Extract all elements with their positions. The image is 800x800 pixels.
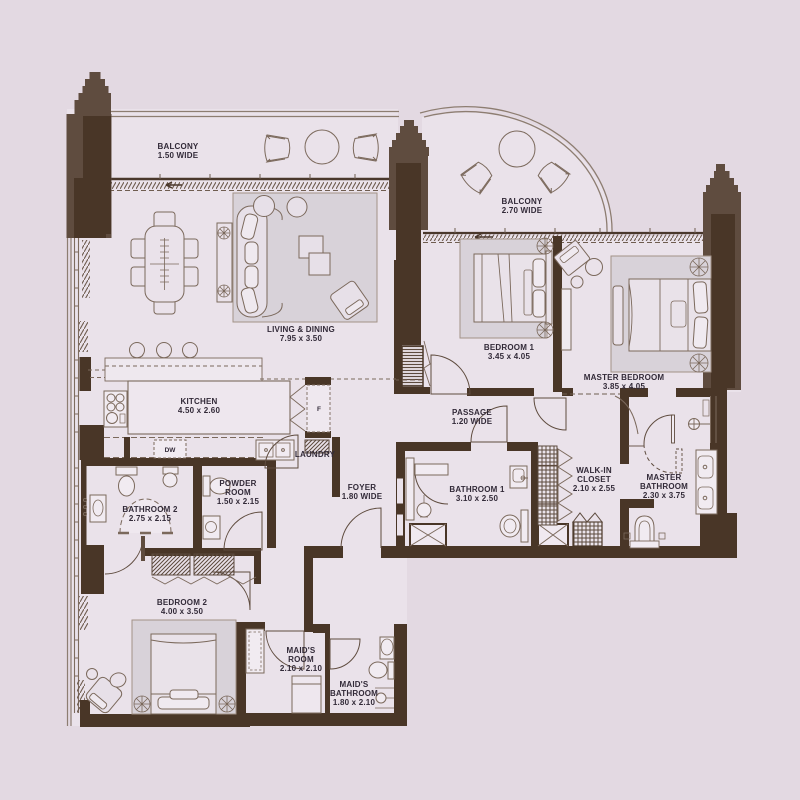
svg-text:BALCONY: BALCONY: [158, 142, 199, 151]
svg-text:2.10 x 2.55: 2.10 x 2.55: [573, 484, 616, 493]
svg-text:4.50 x 2.60: 4.50 x 2.60: [178, 406, 221, 415]
svg-text:1.50 x 2.15: 1.50 x 2.15: [217, 497, 260, 506]
svg-text:CLOSET: CLOSET: [577, 475, 611, 484]
svg-text:BEDROOM 2: BEDROOM 2: [157, 598, 208, 607]
svg-text:2.70 WIDE: 2.70 WIDE: [502, 206, 543, 215]
svg-text:4.00 x 3.50: 4.00 x 3.50: [161, 607, 204, 616]
svg-text:MAID'S: MAID'S: [287, 646, 316, 655]
svg-text:3.45 x 4.05: 3.45 x 4.05: [488, 352, 531, 361]
svg-text:BATHROOM: BATHROOM: [640, 482, 688, 491]
svg-text:BEDROOM 1: BEDROOM 1: [484, 343, 535, 352]
svg-text:3.85 x 4.05: 3.85 x 4.05: [603, 382, 646, 391]
svg-text:DW: DW: [165, 447, 177, 454]
svg-text:ROOM: ROOM: [288, 655, 314, 664]
svg-text:BALCONY: BALCONY: [502, 197, 543, 206]
svg-text:ROOM: ROOM: [225, 488, 251, 497]
svg-text:7.95 x 3.50: 7.95 x 3.50: [280, 334, 323, 343]
svg-text:3.10 x 2.50: 3.10 x 2.50: [456, 494, 499, 503]
svg-text:2.75 x 2.15: 2.75 x 2.15: [129, 514, 172, 523]
svg-text:PASSAGE: PASSAGE: [452, 408, 492, 417]
svg-text:MAID'S: MAID'S: [340, 680, 369, 689]
svg-text:BATHROOM: BATHROOM: [330, 689, 378, 698]
svg-text:KITCHEN: KITCHEN: [181, 397, 218, 406]
svg-text:2.10 x 2.10: 2.10 x 2.10: [280, 664, 323, 673]
svg-text:F: F: [317, 406, 321, 413]
svg-text:FOYER: FOYER: [348, 483, 377, 492]
svg-text:LIVING & DINING: LIVING & DINING: [267, 325, 335, 334]
svg-text:MASTER BEDROOM: MASTER BEDROOM: [584, 373, 665, 382]
svg-text:LAUNDRY: LAUNDRY: [295, 450, 336, 459]
svg-text:1.80 WIDE: 1.80 WIDE: [342, 492, 383, 501]
svg-text:1.50 WIDE: 1.50 WIDE: [158, 151, 199, 160]
svg-text:BATHROOM 2: BATHROOM 2: [122, 505, 178, 514]
svg-text:MASTER: MASTER: [647, 473, 682, 482]
svg-text:1.20 WIDE: 1.20 WIDE: [452, 417, 493, 426]
svg-text:WALK-IN: WALK-IN: [576, 466, 612, 475]
svg-text:1.80 x 2.10: 1.80 x 2.10: [333, 698, 376, 707]
svg-text:2.30 x 3.75: 2.30 x 3.75: [643, 491, 686, 500]
svg-text:POWDER: POWDER: [219, 479, 256, 488]
svg-text:BATHROOM 1: BATHROOM 1: [449, 485, 505, 494]
